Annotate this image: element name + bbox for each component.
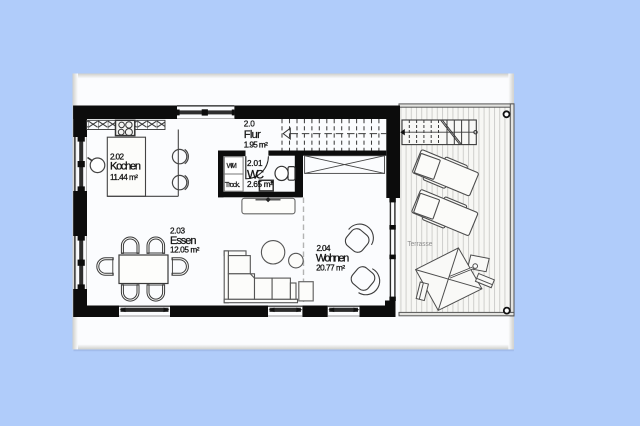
svg-text:Kochen: Kochen (110, 160, 141, 172)
svg-text:12.05 m²: 12.05 m² (170, 246, 200, 255)
svg-text:WM: WM (227, 161, 237, 170)
svg-text:2.65 m²: 2.65 m² (247, 180, 273, 189)
svg-text:1.95 m²: 1.95 m² (244, 141, 268, 150)
svg-text:20.77 m²: 20.77 m² (316, 263, 345, 272)
svg-text:Flur: Flur (244, 129, 261, 141)
svg-text:11.44 m²: 11.44 m² (110, 173, 138, 182)
svg-text:Trock.: Trock. (225, 180, 241, 189)
svg-text:Terrasse: Terrasse (407, 241, 432, 248)
svg-text:2.0: 2.0 (244, 120, 255, 129)
